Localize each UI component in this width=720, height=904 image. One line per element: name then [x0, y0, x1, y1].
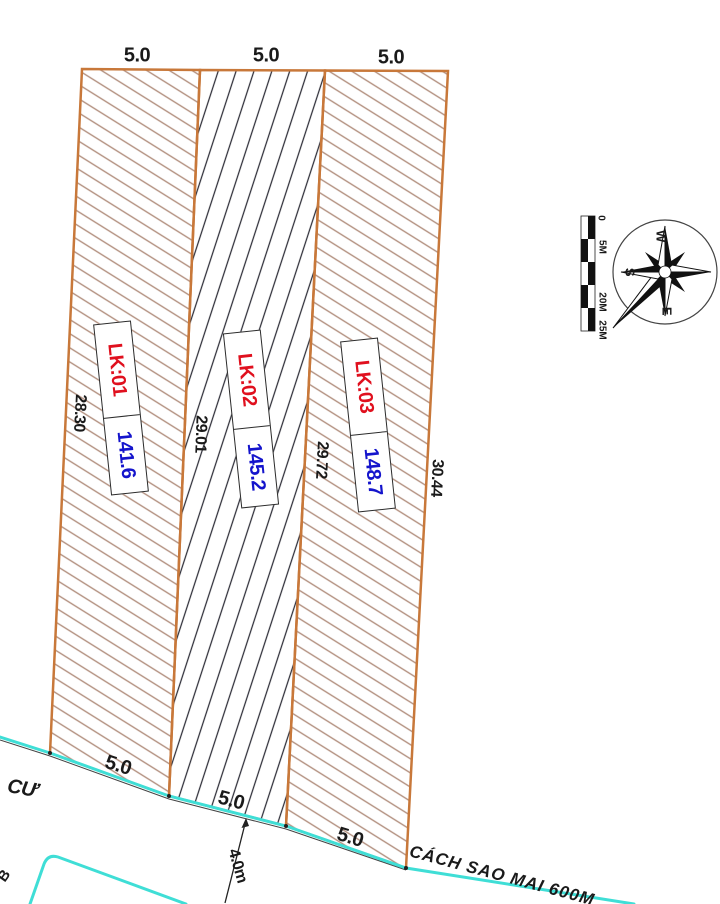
scale-tick-5m: 5M	[597, 240, 608, 254]
plot-2-top-dimension: 5.0	[253, 45, 279, 68]
opposite-parcel-outline	[30, 856, 186, 904]
plot-3-right-edge-dimension: 30.44	[426, 459, 446, 497]
compass-west-label: W	[654, 230, 669, 242]
plot-1-left-edge-dimension: 28.30	[69, 394, 89, 432]
plot-3-area: 148.7	[351, 432, 395, 511]
scale-bar	[581, 216, 595, 331]
plot-3-left-edge-dimension: 29.72	[311, 441, 331, 479]
cadastral-drawing: 5.0 5.0 5.0 28.30 29.01 29.72 30.44 LK:0…	[0, 0, 720, 904]
plot-3-top-dimension: 5.0	[378, 47, 404, 70]
plot-2-area: 145.2	[234, 426, 278, 507]
compass-south-label: S	[623, 268, 638, 276]
scale-tick-20m: 20M	[597, 292, 608, 311]
plot-1-area: 141.6	[104, 415, 148, 494]
scale-tick-0: 0	[596, 215, 607, 221]
adjacent-area-label: CƯ	[5, 775, 38, 803]
compass-east-label: E	[660, 307, 675, 315]
scale-tick-25m: 25M	[597, 320, 608, 339]
plot-1-top-dimension: 5.0	[124, 45, 150, 68]
plot-2-left-edge-dimension: 29.01	[190, 415, 209, 453]
